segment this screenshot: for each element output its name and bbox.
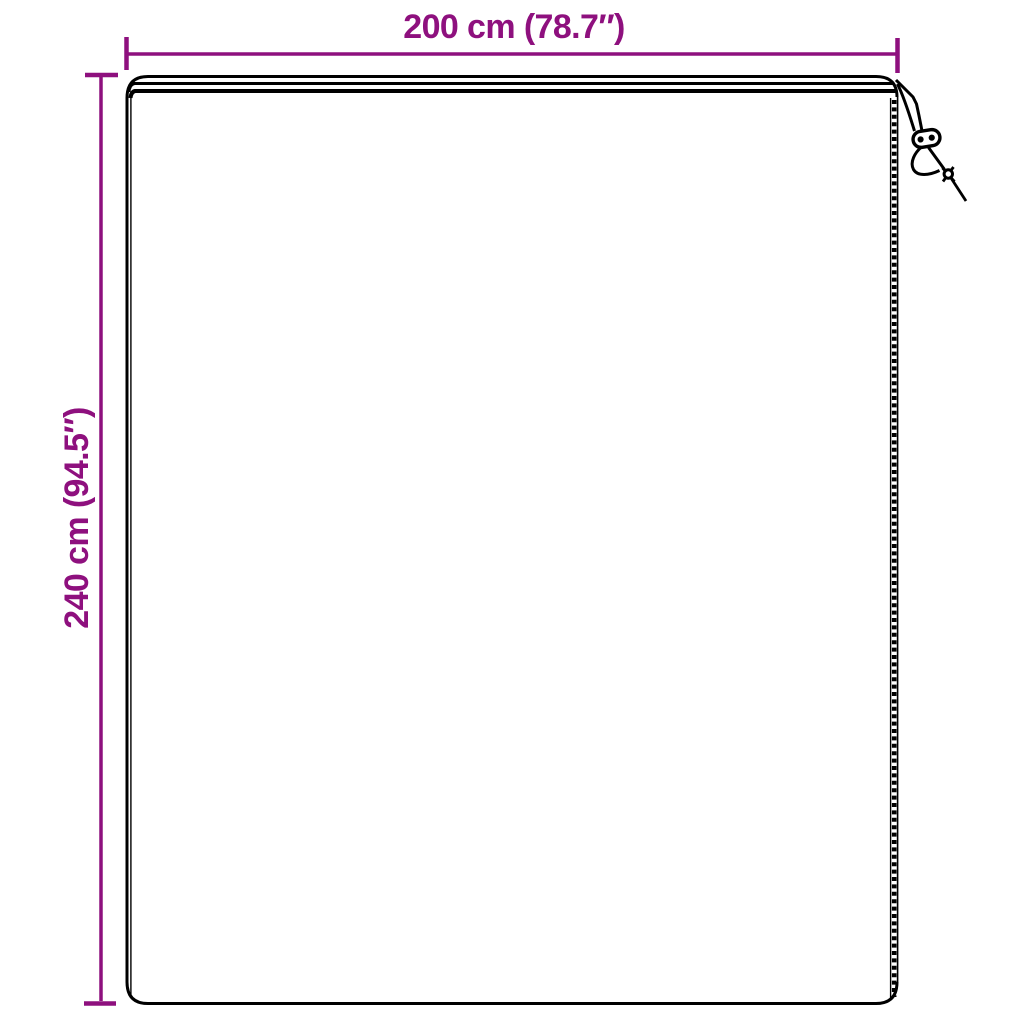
cover-body — [127, 77, 897, 1004]
dimension-diagram: 200 cm (78.7″) 240 cm (94.5″) — [0, 0, 1024, 1024]
cord-tail — [951, 178, 966, 201]
height-label: 240 cm (94.5″) — [60, 407, 94, 628]
cover-outline — [127, 77, 898, 1004]
cord-lower-loop — [912, 147, 939, 175]
cord-lock-body — [912, 128, 941, 148]
drawstring-toggle-icon — [896, 80, 966, 201]
cord-lock — [912, 128, 941, 148]
cord-lower-strand — [929, 148, 945, 170]
width-label: 200 cm (78.7″) — [403, 10, 624, 44]
product-drawing — [0, 0, 1024, 1024]
cord-knot — [944, 170, 952, 178]
